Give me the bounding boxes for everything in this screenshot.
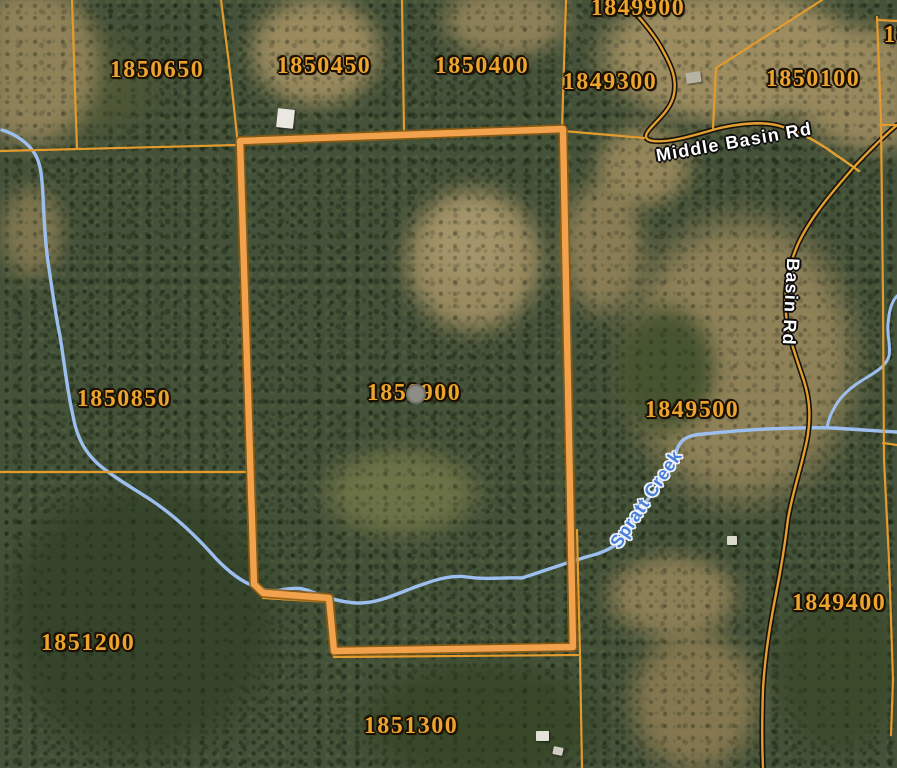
parcel-label-1850850[interactable]: 1850850	[77, 387, 172, 411]
parcel-label-1851200[interactable]: 1851200	[41, 631, 136, 655]
creek-label-spratt-creek: Spratt Creek	[607, 447, 685, 551]
labels-layer: 1849900185065018504501850400184930018501…	[0, 0, 897, 768]
parcel-label-1849400[interactable]: 1849400	[792, 591, 887, 615]
road-label-middle-basin-rd: Middle Basin Rd	[655, 119, 814, 164]
parcel-label-1850650[interactable]: 1850650	[110, 58, 205, 82]
parcel-label-1849300[interactable]: 1849300	[563, 70, 658, 94]
parcel-label-1849500[interactable]: 1849500	[645, 398, 740, 422]
parcel-label-1850450[interactable]: 1850450	[277, 54, 372, 78]
parcel-label-1850400[interactable]: 1850400	[435, 54, 530, 78]
parcel-label-18[interactable]: 18	[884, 23, 897, 47]
parcel-label-1849900[interactable]: 1849900	[591, 0, 686, 20]
parcel-label-1850100[interactable]: 1850100	[766, 67, 861, 91]
map-viewport[interactable]: 1849900185065018504501850400184930018501…	[0, 0, 897, 768]
parcel-label-1851300[interactable]: 1851300	[364, 714, 459, 738]
road-label-basin-rd: Basin Rd	[780, 258, 803, 346]
selected-parcel-marker[interactable]	[406, 384, 426, 404]
